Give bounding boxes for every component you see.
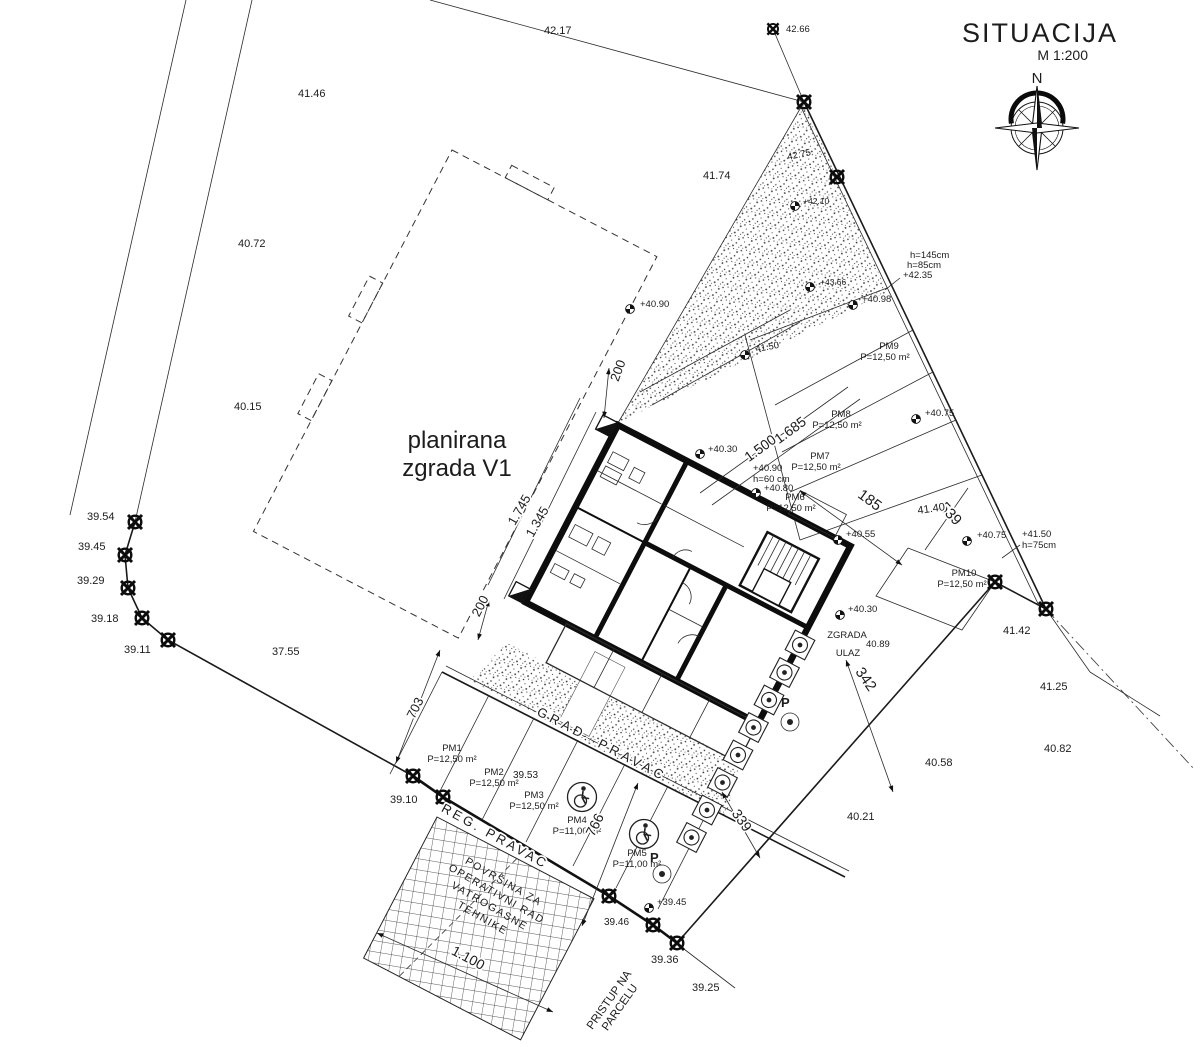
survey-marker-icon xyxy=(767,23,778,34)
planned-building-outline xyxy=(240,131,663,638)
ground-elevation: 39.11 xyxy=(124,644,151,656)
fire-operations-area xyxy=(364,817,594,1040)
ground-elevation: 39.36 xyxy=(651,954,679,966)
spot-height: +40.55 xyxy=(846,529,875,540)
parking-stall-id: PM4 xyxy=(567,815,587,826)
ground-elevation: 40.82 xyxy=(1044,743,1072,755)
spot-marker-icon xyxy=(626,305,635,314)
wheelchair-icon xyxy=(568,783,597,812)
sheet-scale: M 1:200 xyxy=(1037,47,1088,63)
spot-marker-icon xyxy=(752,489,761,498)
entrance-line1: ZGRADA xyxy=(827,630,867,641)
ground-elevation: 41.25 xyxy=(1040,681,1068,693)
ground-elevation: 40.15 xyxy=(234,401,262,413)
compass-rose: N xyxy=(995,70,1079,170)
spot-marker-icon xyxy=(849,301,858,310)
ground-elevation: 39.45 xyxy=(78,541,106,553)
dim-1685: 1.685 xyxy=(771,413,809,447)
spot-marker-icon xyxy=(696,450,705,459)
wheelchair-icon xyxy=(630,820,659,849)
spot-marker-icon xyxy=(836,611,845,620)
ground-elevation: 39.29 xyxy=(77,575,105,587)
ground-elevation: 39.10 xyxy=(390,794,418,806)
site-plan-drawing: P P xyxy=(0,0,1200,1047)
survey-marker-icon xyxy=(135,611,149,625)
parking-stall-area: P=11,00 m² xyxy=(613,859,662,870)
spot-height: +40.98 xyxy=(862,294,891,305)
ground-elevation: 37.55 xyxy=(272,646,300,658)
spot-marker-icon xyxy=(963,537,972,546)
north-label: N xyxy=(1032,70,1043,87)
spot-height: +40.75 xyxy=(977,530,1006,541)
dim-703: 703 xyxy=(403,695,426,721)
parking-sign-letter: P xyxy=(781,695,790,710)
parking-stall-id: PM5 xyxy=(627,848,647,859)
access-label: PRISTUP NA PARCELU xyxy=(585,968,645,1039)
ground-elevation: 41.46 xyxy=(298,88,326,100)
entrance-line2: ULAZ xyxy=(836,648,860,659)
spot-marker-icon xyxy=(645,904,654,913)
spot-height: +42.10 xyxy=(803,196,830,206)
parking-stall-id: PM8 xyxy=(831,409,851,420)
spot-height: +42.35 xyxy=(903,270,932,281)
ground-elevation: 40.58 xyxy=(925,757,953,769)
parking-stall-id: PM9 xyxy=(879,341,899,352)
parking-stall-area: P=12,50 m² xyxy=(937,579,986,590)
survey-marker-icon xyxy=(406,769,420,783)
spot-marker-icon xyxy=(834,536,843,545)
ground-elevation: 39.25 xyxy=(692,982,720,994)
sheet-title: SITUACIJA xyxy=(962,18,1118,48)
spot-marker-icon xyxy=(791,202,800,211)
survey-marker-icon xyxy=(988,575,1002,589)
ground-elevation: 40.21 xyxy=(847,811,875,823)
spot-height: +39.45 xyxy=(657,897,686,908)
parking-stall-area: P=12,50 m² xyxy=(469,778,518,789)
site-plan-sheet: P P xyxy=(0,0,1200,1047)
spot-height: +40.30 xyxy=(708,444,737,455)
parking-stall-area: P=12,50 m² xyxy=(812,420,861,431)
spot-height: +40.90 xyxy=(640,299,669,310)
parking-stall-id: PM2 xyxy=(484,767,504,778)
parking-sign-1: P xyxy=(781,695,799,731)
ground-elevation: 39.54 xyxy=(87,511,115,523)
dim-185: 185 xyxy=(855,486,885,514)
building-label-line2: zgrada V1 xyxy=(402,455,511,482)
parking-stall-id: PM1 xyxy=(442,743,462,754)
dim-200-left: 200 xyxy=(468,593,491,619)
spot-height: 42.66 xyxy=(786,24,810,35)
parking-stall-area: P=12,50 m² xyxy=(427,754,476,765)
survey-marker-icon xyxy=(602,889,616,903)
ground-elevation: 40.72 xyxy=(238,238,266,250)
parking-stall-area: P=12,50 m² xyxy=(509,801,558,812)
spot-height: +40.30 xyxy=(848,604,877,615)
spot-marker-icon xyxy=(741,351,750,360)
parking-stall-id: PM10 xyxy=(952,568,977,579)
spot-height: +43.66 xyxy=(820,277,847,287)
ground-elevation: 39.46 xyxy=(604,917,629,928)
survey-marker-icon xyxy=(670,936,684,950)
parking-stall-area: P=12,50 m² xyxy=(766,503,815,514)
planned-building-label: planirana zgrada V1 xyxy=(402,427,511,482)
ground-elevation: 41.74 xyxy=(703,170,731,182)
survey-marker-icon xyxy=(646,918,660,932)
ground-elevation: 40.89 xyxy=(866,639,890,650)
spot-height: +40.75 xyxy=(925,408,954,419)
parking-stall-area: P=12,50 m² xyxy=(860,352,909,363)
parking-stall-area: P=12,50 m² xyxy=(791,462,840,473)
spot-marker-icon xyxy=(806,283,815,292)
survey-marker-icon xyxy=(161,633,175,647)
spot-marker-icon xyxy=(912,415,921,424)
ground-elevation: 39.53 xyxy=(513,770,538,781)
parking-stall-id: PM3 xyxy=(524,790,544,801)
ground-elevation: 42.17 xyxy=(544,25,572,37)
parking-stall-id: PM7 xyxy=(810,451,830,462)
ground-elevation: 39.18 xyxy=(91,613,119,625)
ground-elevation: 41.42 xyxy=(1003,625,1031,637)
dim-200-top: 200 xyxy=(607,358,629,384)
dim-342: 342 xyxy=(852,664,880,694)
spot-height: +40.90 xyxy=(753,463,782,474)
survey-marker-icon xyxy=(128,515,142,529)
spot-height-note: h=75cm xyxy=(1022,540,1056,551)
entrance-label: ZGRADA ULAZ xyxy=(827,630,867,659)
building-label-line1: planirana xyxy=(408,427,507,454)
spot-height: +41.50 xyxy=(1022,529,1051,540)
survey-marker-icon xyxy=(1039,602,1053,616)
spot-height: +40.80 xyxy=(764,483,793,494)
